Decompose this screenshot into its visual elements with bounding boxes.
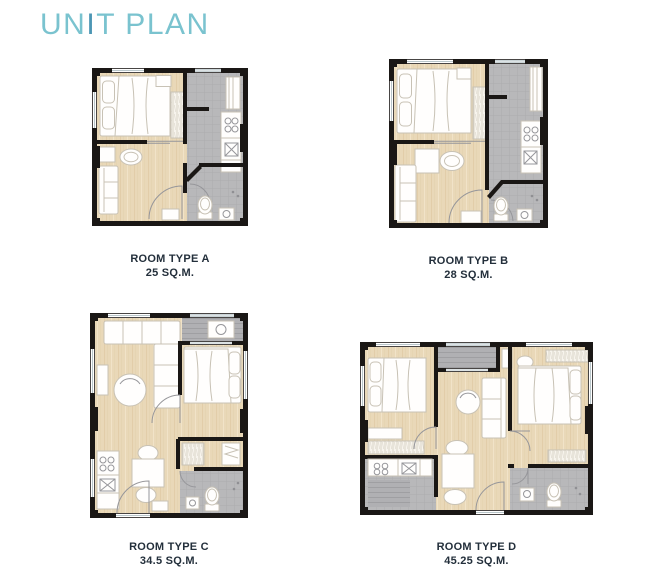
- shoe-cabinet: [162, 209, 179, 220]
- console: [97, 365, 108, 395]
- wardrobe: [473, 87, 487, 139]
- floor-plan-room-type-d: [360, 342, 593, 515]
- title-accent-letter: I: [86, 8, 96, 41]
- bathroom-sink: [517, 209, 532, 221]
- tall-cabinet: [530, 67, 542, 111]
- unit-caption-d: ROOM TYPE D 45.25 SQ.M.: [360, 541, 593, 568]
- bathroom-sink: [520, 488, 534, 501]
- balcony-washer: [208, 321, 234, 338]
- floor-plan-room-type-c: [90, 313, 248, 518]
- kitchen-counter: [368, 459, 432, 476]
- unit-b-area: 28 SQ.M.: [389, 269, 548, 283]
- wardrobe: [368, 441, 424, 454]
- shoe-cabinet: [461, 211, 481, 223]
- wardrobe: [546, 350, 588, 362]
- unit-d-area: 45.25 SQ.M.: [360, 555, 593, 569]
- title-part-1: UN: [40, 8, 86, 41]
- desk: [368, 428, 402, 439]
- unit-a-name: ROOM TYPE A: [92, 253, 248, 267]
- shoe-cabinet: [152, 501, 168, 511]
- bed: [518, 366, 581, 424]
- cabinet: [415, 149, 439, 173]
- wardrobe: [548, 450, 586, 462]
- round-table: [456, 390, 480, 414]
- sofa: [395, 165, 416, 222]
- unit-d-name: ROOM TYPE D: [360, 541, 593, 555]
- utility-area: [368, 480, 410, 507]
- floor-plan-c-drawing: [90, 313, 248, 518]
- round-table: [114, 374, 146, 406]
- unit-c-name: ROOM TYPE C: [90, 541, 248, 555]
- floor-plan-a-drawing: [92, 68, 248, 226]
- bathroom-sink: [219, 208, 234, 220]
- page-title: UNIT PLAN: [40, 8, 210, 42]
- wardrobe: [171, 92, 185, 138]
- bed: [184, 347, 241, 403]
- kitchen-counter: [97, 451, 119, 509]
- side-table: [120, 149, 142, 165]
- tv-cabinet: [99, 147, 115, 162]
- desk: [222, 443, 240, 465]
- kitchen-counter: [521, 121, 541, 173]
- toilet: [198, 196, 212, 219]
- unit-c-area: 34.5 SQ.M.: [90, 555, 248, 569]
- unit-caption-a: ROOM TYPE A 25 SQ.M.: [92, 253, 248, 280]
- bathroom-sink: [186, 497, 199, 509]
- floor-plan-room-type-b: [389, 59, 548, 228]
- bedside-shelf: [156, 76, 171, 87]
- floor-plan-d-drawing: [360, 342, 593, 515]
- unit-b-name: ROOM TYPE B: [389, 255, 548, 269]
- side-table: [440, 152, 464, 171]
- toilet: [205, 487, 219, 511]
- entry-wardrobe: [226, 77, 240, 109]
- floor-plan-room-type-a: [92, 68, 248, 226]
- bedside-shelf: [457, 68, 471, 79]
- sofa: [99, 166, 118, 214]
- sofa: [482, 378, 506, 438]
- toilet: [547, 483, 561, 507]
- floor-plan-b-drawing: [389, 59, 548, 228]
- toilet: [494, 197, 508, 221]
- wardrobe: [182, 443, 204, 465]
- unit-caption-b: ROOM TYPE B 28 SQ.M.: [389, 255, 548, 282]
- unit-caption-c: ROOM TYPE C 34.5 SQ.M.: [90, 541, 248, 568]
- title-part-2: T PLAN: [96, 8, 210, 41]
- unit-a-area: 25 SQ.M.: [92, 267, 248, 281]
- bed: [368, 358, 426, 412]
